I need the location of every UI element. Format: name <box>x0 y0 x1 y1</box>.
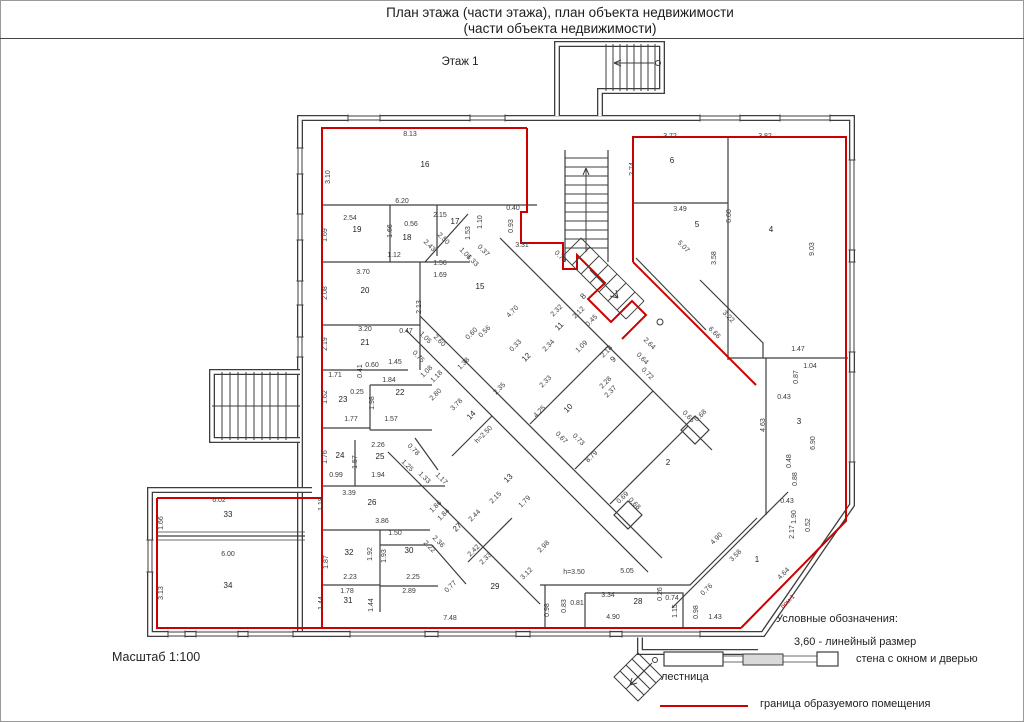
dimension-label: 0.52 <box>805 518 812 532</box>
dimension-label: 1.98 <box>369 396 376 410</box>
dimension-label: 0.76 <box>700 583 715 598</box>
dimension-label: 2.23 <box>343 574 357 581</box>
dimension-label: 2.44 <box>468 509 483 524</box>
dimension-label: 0.99 <box>329 472 343 479</box>
room-number: 30 <box>405 546 414 555</box>
dimension-label: 1.47 <box>791 346 805 353</box>
room-number: 8 <box>578 291 588 301</box>
room-number: 29 <box>491 582 500 591</box>
dimension-label: 3.49 <box>673 206 687 213</box>
dimension-label: 1.04 <box>803 363 817 370</box>
dimension-label: 2.89 <box>402 588 416 595</box>
room-number: 15 <box>476 282 485 291</box>
dimension-label: 3.39 <box>342 490 356 497</box>
dimension-label: 1.57 <box>384 416 398 423</box>
formed-premises-boundary <box>521 128 646 339</box>
dimension-label: 0.77 <box>444 580 459 595</box>
dimension-label: 4.70 <box>506 305 521 320</box>
dimension-label: 1.17 <box>434 472 449 487</box>
dimension-label: 6.02 <box>212 497 226 504</box>
dimension-label: 9.03 <box>809 242 816 256</box>
dimension-label: 0.40 <box>506 205 520 212</box>
dimension-label: 0.72 <box>640 367 655 382</box>
dimension-label: 2.12 <box>572 306 587 321</box>
room-number: 2 <box>666 458 671 467</box>
room-number: 5 <box>695 220 700 229</box>
dimension-label: 0.68 <box>627 497 642 512</box>
dimension-label: 1.90 <box>791 510 798 524</box>
dimension-label: h=3.50 <box>563 569 585 576</box>
dimension-label: 1.84 <box>437 508 452 523</box>
dimension-label: 2.25 <box>406 574 420 581</box>
room-number: 23 <box>339 395 348 404</box>
dimension-label: 0.43 <box>780 498 794 505</box>
dimension-label: 0.83 <box>561 599 568 613</box>
dimension-label: 2.50 <box>436 232 451 247</box>
dimension-label: 3.34 <box>601 592 615 599</box>
dimension-label: 1.50 <box>388 530 402 537</box>
dimension-label: 1.57 <box>352 455 359 469</box>
dimension-label: 1.92 <box>367 547 374 561</box>
dimension-label: 1.76 <box>322 450 329 464</box>
dimension-label: 2.34 <box>542 339 557 354</box>
dimension-label: 1.33 <box>465 254 480 269</box>
dimension-label: 3.20 <box>358 326 372 333</box>
dimension-label: 2.08 <box>322 286 329 300</box>
dimension-label: 4.63 <box>760 418 767 432</box>
dimension-label: 2.15 <box>489 491 504 506</box>
room-number: 28 <box>634 597 643 606</box>
room-number: 32 <box>345 548 354 557</box>
dimension-label: 0.45 <box>585 314 600 329</box>
dimension-label: 1.43 <box>708 614 722 621</box>
dimension-label: 3.70 <box>356 269 370 276</box>
dimension-label: 0.48 <box>786 454 793 468</box>
dimension-label: 0.64 <box>635 352 650 367</box>
dimension-label: 6.90 <box>810 436 817 450</box>
dimension-label: 0.78 <box>406 443 421 458</box>
dimension-label: 0.41 <box>357 364 364 378</box>
dimension-label: 1.69 <box>322 228 329 242</box>
dimension-label: h=2.50 <box>474 425 494 445</box>
dimension-label: 0.74 <box>665 595 679 602</box>
dimension-label: 1.77 <box>344 416 358 423</box>
room-number: 18 <box>403 233 412 242</box>
dimension-label: 5.05 <box>620 568 634 575</box>
dimension-label: 2.19 <box>322 337 329 351</box>
room-number: 24 <box>336 451 345 460</box>
floor-plan: 1234568910111213141516171819202122232425… <box>0 0 1024 722</box>
dimension-label: 2.74 <box>629 162 636 176</box>
dimension-label: 2.17 <box>789 525 796 539</box>
formed-premises-boundary <box>633 262 756 385</box>
dimension-label: 8.79 <box>585 450 600 465</box>
dimension-label: 4.90 <box>710 532 725 547</box>
dimension-label: 0.26 <box>657 587 664 601</box>
dimension-label: 2.35 <box>493 382 508 397</box>
dimension-label: 3.86 <box>375 518 389 525</box>
dimension-label: 2.26 <box>371 442 385 449</box>
dimension-label: 0.93 <box>508 219 515 233</box>
room-number: 16 <box>421 160 430 169</box>
dimension-label: 1.44 <box>318 596 325 610</box>
dimension-label: 5.07 <box>676 240 691 255</box>
dimension-label: 1.53 <box>465 226 472 240</box>
dimension-label: 6.00 <box>221 551 235 558</box>
room-number: 31 <box>344 596 353 605</box>
dimension-label: 1.78 <box>340 588 354 595</box>
dimension-label: 0.98 <box>693 605 700 619</box>
room-number: 4 <box>769 225 774 234</box>
room-number: 19 <box>353 225 362 234</box>
dimension-label: 0.73 <box>571 433 586 448</box>
dimension-label: 0.60 <box>365 362 379 369</box>
dimension-label: 1.94 <box>371 472 385 479</box>
dimension-label: 1.79 <box>518 495 533 510</box>
dimension-label: 1.12 <box>387 252 401 259</box>
dimension-label: 0.75 <box>411 350 426 365</box>
dimension-label: 3.78 <box>450 398 465 413</box>
room-number: 27 <box>451 521 464 534</box>
room-number: 17 <box>451 217 460 226</box>
dimension-label: 3.12 <box>520 567 535 582</box>
dimension-label: 1.62 <box>322 390 329 404</box>
dimension-label: 1.38 <box>457 357 472 372</box>
room-number: 20 <box>361 286 370 295</box>
room-number: 22 <box>396 388 405 397</box>
dimension-label: 1.69 <box>433 272 447 279</box>
dimension-label: 1.45 <box>388 359 402 366</box>
dimension-label: 2.32 <box>550 304 565 319</box>
dimension-label: 1.44 <box>368 598 375 612</box>
dimension-label: 1.56 <box>433 260 447 267</box>
dimension-label: 2.13 <box>416 300 423 314</box>
dimension-label: 1.87 <box>323 555 330 569</box>
room-number: 13 <box>502 472 515 485</box>
dimension-label: 1.84 <box>382 377 396 384</box>
dimension-label: 0.68 <box>694 409 709 424</box>
room-number: 33 <box>224 510 233 519</box>
dimension-label: 2.64 <box>642 337 657 352</box>
dimension-label: 3.31 <box>515 242 529 249</box>
dimension-label: 0.56 <box>478 325 493 340</box>
dimension-label: 0.67 <box>554 431 569 446</box>
dimension-label: 3.58 <box>711 251 718 265</box>
dimension-label: пом.1 <box>779 593 796 610</box>
dimension-label: 1.09 <box>575 340 590 355</box>
dimension-label: 2.98 <box>537 540 552 555</box>
dimension-label: 0.56 <box>404 221 418 228</box>
room-number: 25 <box>376 452 385 461</box>
dimension-label: 0.88 <box>792 472 799 486</box>
dimension-label: 0.33 <box>509 339 524 354</box>
dimension-label: 4.90 <box>606 614 620 621</box>
room-number: 3 <box>797 417 802 426</box>
dimension-label: 1.66 <box>387 224 394 238</box>
dimension-label: 0.69 <box>616 491 631 506</box>
dimension-label: 0.81 <box>570 600 584 607</box>
room-number: 11 <box>553 320 566 333</box>
dimension-label: 0.25 <box>350 389 364 396</box>
dimension-label: 3.10 <box>325 170 332 184</box>
dimension-label: 2.80 <box>429 388 444 403</box>
room-number: 26 <box>368 498 377 507</box>
dimension-label: 4.25 <box>533 405 548 420</box>
dimension-label: 2.33 <box>479 552 494 567</box>
dimension-label: 0.47 <box>399 328 413 335</box>
room-number: 6 <box>670 156 675 165</box>
dimension-label: 2.54 <box>343 215 357 222</box>
dimension-label: 2.60 <box>432 334 447 349</box>
dimension-label: 7.48 <box>443 615 457 622</box>
dimension-label: 8.13 <box>403 131 417 138</box>
room-number: 10 <box>562 402 575 415</box>
dimension-label: 2.33 <box>539 375 554 390</box>
room-number: 12 <box>520 351 533 364</box>
dimension-label: 2.15 <box>433 212 447 219</box>
dimension-label: 0.37 <box>476 244 491 259</box>
dimension-label: 1.18 <box>318 497 325 511</box>
dimension-label: 0.43 <box>777 394 791 401</box>
dimension-label: 3.13 <box>158 586 165 600</box>
dimension-label: 0.98 <box>544 603 551 617</box>
room-number: 14 <box>465 409 478 422</box>
dimension-label: 1.71 <box>328 372 342 379</box>
dimension-label: 1.66 <box>158 516 165 530</box>
dimension-label: 1.15 <box>672 604 679 618</box>
dimension-label: 6.20 <box>395 198 409 205</box>
dimension-label: 3.82 <box>758 133 772 140</box>
room-number: 1 <box>755 555 760 564</box>
dimension-label: 1.10 <box>477 215 484 229</box>
room-number: 21 <box>361 338 370 347</box>
dimension-label: 3.72 <box>663 133 677 140</box>
dimension-label: 6.60 <box>726 209 733 223</box>
dimension-label: 0.87 <box>793 370 800 384</box>
room-number: 34 <box>224 581 233 590</box>
dimension-label: 3.58 <box>729 549 744 564</box>
dimension-label: 1.93 <box>381 549 388 563</box>
